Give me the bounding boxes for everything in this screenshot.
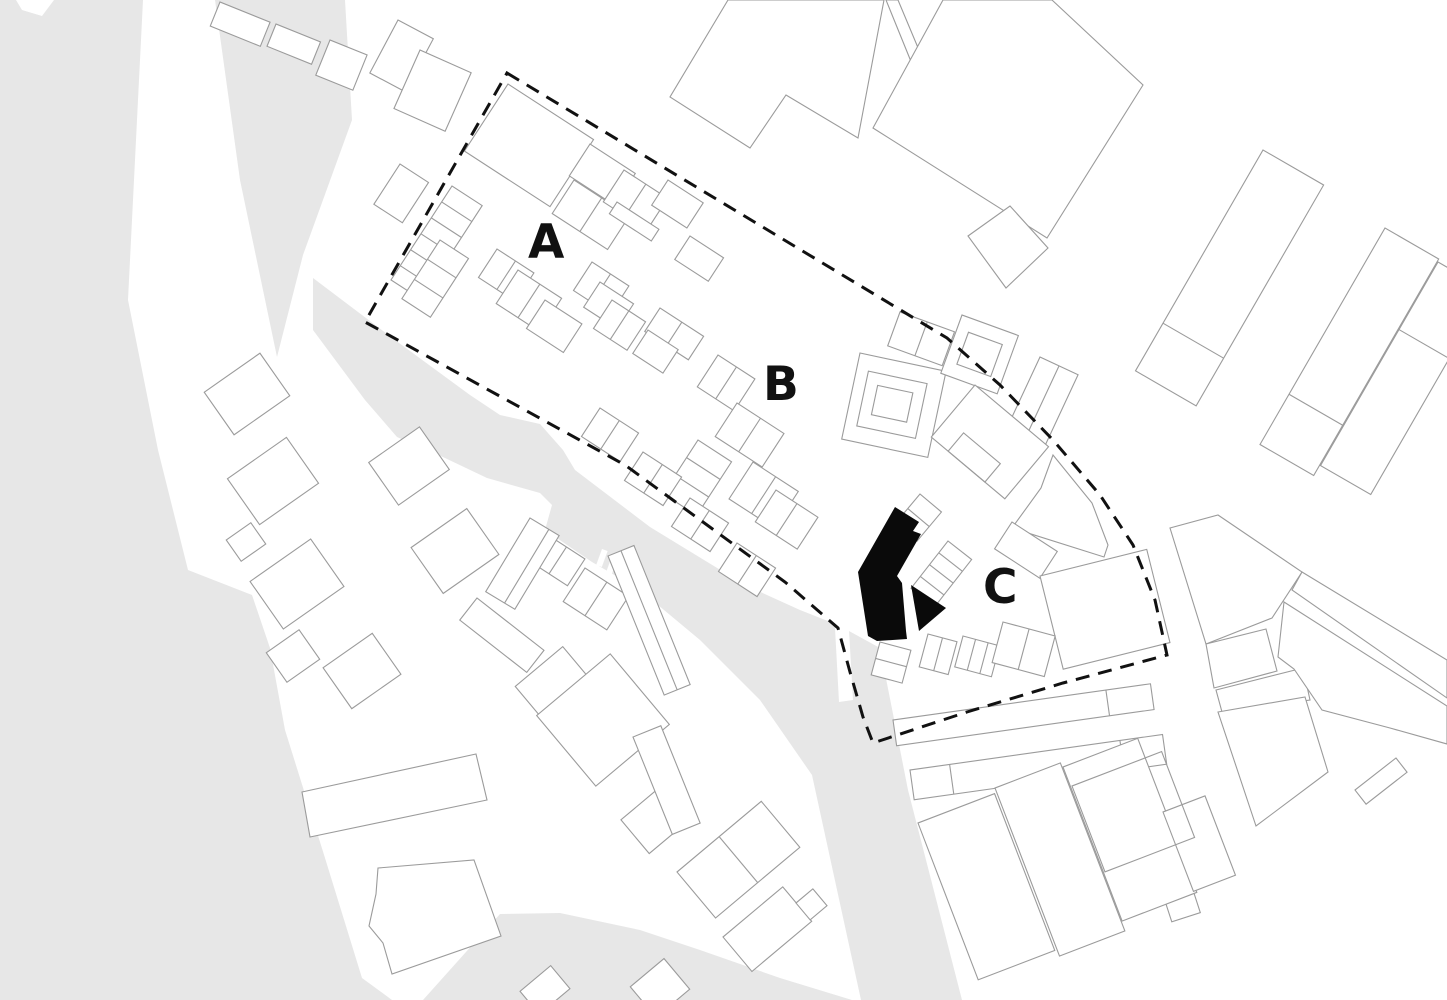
building-footprint <box>460 598 544 672</box>
zone-label-c: C <box>983 560 1018 615</box>
buildings-east-slabs <box>1136 150 1447 495</box>
building-footprint <box>941 315 1019 394</box>
building-footprint <box>1355 758 1407 804</box>
building-footprint <box>1040 549 1170 669</box>
building-footprint <box>227 437 318 524</box>
zone-label-b: B <box>763 357 799 412</box>
building-footprint <box>919 634 957 675</box>
building-footprint <box>323 633 401 708</box>
building-footprint <box>888 312 955 366</box>
building-footprint <box>1218 697 1328 826</box>
building-footprint <box>411 509 499 594</box>
zone-label-a: A <box>528 215 565 270</box>
building-footprint <box>1136 150 1324 406</box>
building-footprint <box>227 437 318 524</box>
building-footprint <box>460 598 544 672</box>
building-footprint <box>955 636 1000 677</box>
site-plan-canvas: A B C <box>0 0 1447 1000</box>
building-footprint <box>581 408 638 462</box>
building-footprint <box>204 353 290 435</box>
building-footprint <box>226 523 265 562</box>
building-footprint <box>250 539 344 629</box>
building-footprint <box>893 684 1154 746</box>
building-footprint <box>671 498 728 552</box>
building-footprint <box>1040 549 1170 669</box>
building-footprint <box>374 164 429 223</box>
building-footprint <box>697 355 755 411</box>
building-footprint <box>204 353 290 435</box>
long-bar-building <box>302 754 487 837</box>
building-footprint <box>992 622 1055 677</box>
building-footprint <box>675 236 724 281</box>
building-footprint <box>250 539 344 629</box>
building-footprint <box>955 636 1000 677</box>
courtyard-building <box>842 353 946 457</box>
building-footprint <box>1355 758 1407 804</box>
building-footprint <box>941 315 1019 394</box>
building-footprint <box>226 523 265 562</box>
building-footprint <box>411 509 499 594</box>
building-footprint <box>323 633 401 708</box>
building-footprint <box>374 164 429 223</box>
context-buildings <box>204 0 1447 1000</box>
buildings-northeast <box>670 0 1143 288</box>
building-footprint <box>842 353 946 457</box>
site-plan: A B C <box>0 0 1447 1000</box>
building-footprint <box>1136 150 1324 406</box>
building-footprint <box>675 236 724 281</box>
building-footprint <box>670 0 884 148</box>
project-building-main <box>858 507 921 641</box>
building-footprint <box>893 684 1154 746</box>
